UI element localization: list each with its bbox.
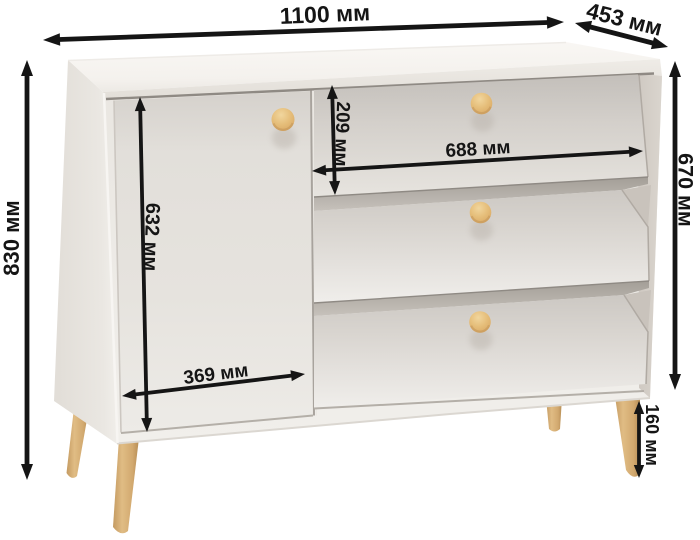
svg-text:670 мм: 670 мм (673, 153, 697, 227)
svg-text:688 мм: 688 мм (445, 137, 511, 162)
svg-text:632 мм: 632 мм (139, 202, 163, 271)
svg-text:160 мм: 160 мм (642, 404, 662, 466)
svg-text:1100 мм: 1100 мм (279, 0, 370, 29)
svg-text:830 мм: 830 мм (0, 200, 24, 275)
svg-text:209 мм: 209 мм (330, 101, 353, 167)
